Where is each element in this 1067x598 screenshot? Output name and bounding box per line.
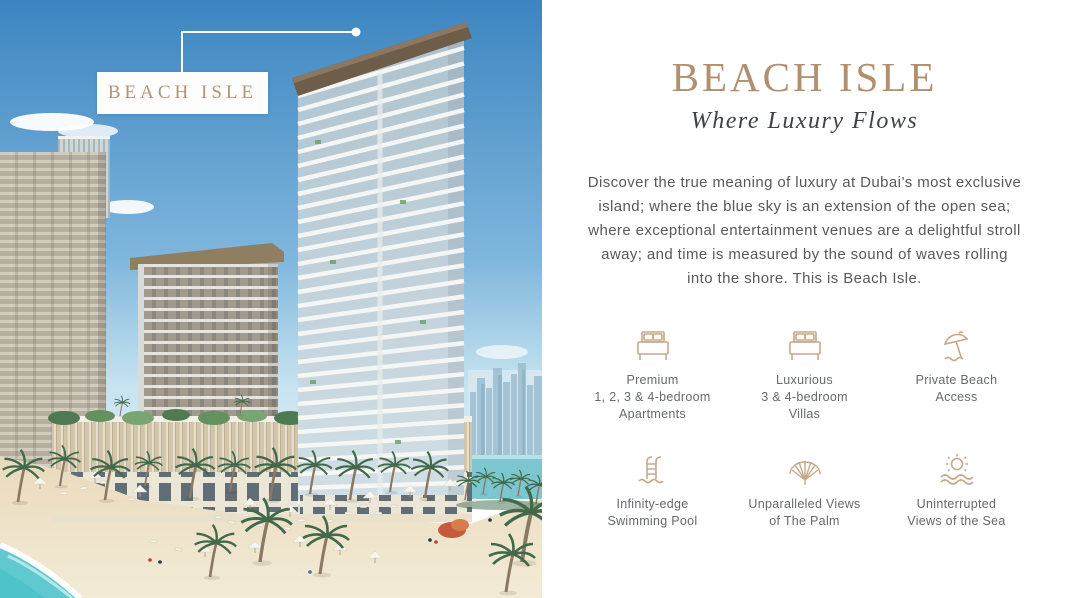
page-subtitle: Where Luxury Flows [691,108,918,135]
feature-label: UninterruptedViews of the Sea [907,496,1005,530]
hero-photo-illustration [0,0,542,598]
sun-sea-icon [935,453,979,487]
distant-skyline [468,363,542,458]
content-panel: BEACH ISLE Where Luxury Flows Discover t… [542,0,1067,598]
page-title: BEACH ISLE [672,56,938,99]
tower-callout-label: BEACH ISLE [108,82,257,104]
pool-ladder-icon [631,453,675,487]
feature-label: Luxurious3 & 4-bedroomVillas [761,372,848,423]
feature-sea-views: UninterruptedViews of the Sea [881,453,1033,530]
palm-island-icon [783,453,827,487]
feature-label: Private BeachAccess [916,372,998,406]
bed-icon [631,329,675,363]
main-tower [292,22,472,520]
feature-villas: Luxurious3 & 4-bedroomVillas [729,329,881,423]
feature-label: Unparalleled Viewsof The Palm [748,496,860,530]
feature-premium-apartments: Premium1, 2, 3 & 4-bedroomApartments [577,329,729,423]
feature-palm-views: Unparalleled Viewsof The Palm [729,453,881,530]
description-paragraph: Discover the true meaning of luxury at D… [587,171,1023,291]
beach-isle-slide: BEACH ISLE BEACH ISLE Where Luxury Flows… [0,0,1067,598]
feature-grid: Premium1, 2, 3 & 4-bedroomApartments Lux… [577,329,1033,530]
feature-swimming-pool: Infinity-edgeSwimming Pool [577,453,729,530]
beach-umbrella-icon [935,329,979,363]
hero-photo: BEACH ISLE [0,0,542,598]
feature-label: Premium1, 2, 3 & 4-bedroomApartments [594,372,710,423]
feature-private-beach: Private BeachAccess [881,329,1033,423]
tower-callout: BEACH ISLE [97,72,268,114]
bed-icon [783,329,827,363]
feature-label: Infinity-edgeSwimming Pool [607,496,697,530]
